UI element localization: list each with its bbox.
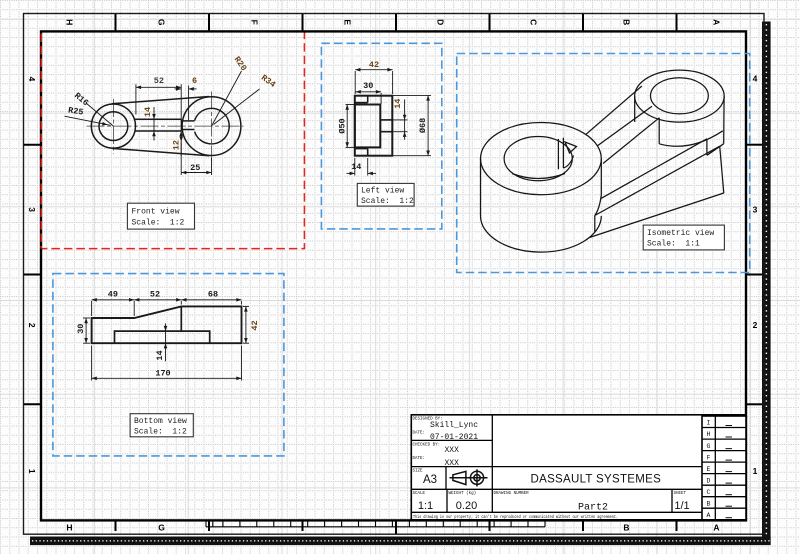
svg-text:SIZE: SIZE [413,470,424,474]
svg-text:42: 42 [369,60,379,70]
svg-text:Isometric view: Isometric view [647,229,714,238]
svg-text:DRAWING NUMBER: DRAWING NUMBER [494,492,530,496]
svg-text:1: 1 [753,466,758,476]
svg-text:DASSAULT SYSTEMES: DASSAULT SYSTEMES [531,474,662,486]
svg-text:1: 1 [27,469,37,474]
svg-text:F: F [707,454,711,461]
svg-text:Part2: Part2 [578,503,608,514]
svg-text:0.20: 0.20 [456,500,477,512]
svg-text:Left view: Left view [361,187,404,196]
svg-text:52: 52 [154,76,164,86]
svg-text:3: 3 [27,207,37,212]
svg-text:DATE:: DATE: [413,457,426,461]
svg-text:G: G [707,443,711,450]
svg-text:2: 2 [27,323,37,328]
svg-text:B: B [623,523,629,533]
svg-text:170: 170 [155,368,170,378]
svg-text:E: E [707,466,711,473]
svg-text:B: B [622,19,632,25]
svg-text:C: C [707,489,711,496]
svg-text:12: 12 [172,140,182,150]
svg-text:25: 25 [190,163,200,173]
svg-text:68: 68 [208,290,218,300]
svg-text:Ø68: Ø68 [418,118,428,133]
svg-text:SHEET: SHEET [674,492,687,496]
svg-text:Scale: 1:2: Scale: 1:2 [361,197,414,206]
svg-text:1:1: 1:1 [418,500,433,512]
svg-text:D: D [707,477,711,484]
svg-text:3: 3 [753,204,758,214]
svg-text:F: F [250,20,260,25]
svg-text:G: G [158,523,165,533]
svg-text:SCALE: SCALE [413,492,426,496]
svg-text:14: 14 [143,107,153,117]
svg-text:A: A [707,512,711,519]
svg-text:Bottom view: Bottom view [134,417,187,426]
svg-text:30: 30 [363,81,373,91]
svg-text:07-01-2021: 07-01-2021 [430,433,478,442]
svg-text:C: C [529,19,539,25]
svg-text:B: B [707,500,711,507]
svg-text:H: H [65,19,75,25]
svg-text:A3: A3 [423,474,437,486]
svg-text:6: 6 [192,76,197,86]
svg-text:Front view: Front view [132,208,180,217]
svg-text:14: 14 [393,99,403,109]
svg-text:49: 49 [108,290,118,300]
svg-text:H: H [66,523,72,533]
svg-text:14: 14 [351,162,361,172]
svg-text:H: H [707,431,711,438]
svg-text:Ø50: Ø50 [338,118,348,133]
svg-text:A: A [712,19,722,25]
svg-text:XXX: XXX [445,459,460,468]
svg-text:Scale: 1:2: Scale: 1:2 [132,219,185,228]
svg-text:CHECKED BY:: CHECKED BY: [413,444,441,448]
svg-text:2: 2 [753,320,758,330]
svg-text:A: A [713,523,719,533]
svg-text:I: I [707,420,711,427]
svg-text:4: 4 [753,74,758,84]
svg-text:D: D [436,19,446,25]
svg-text:30: 30 [76,324,86,334]
svg-text:This drawing is our property;: This drawing is our property; it can't b… [413,514,618,520]
svg-text:DATE:: DATE: [413,431,426,435]
svg-text:Scale: 1:1: Scale: 1:1 [647,240,700,249]
svg-text:G: G [157,19,167,26]
svg-text:Skill_Lync: Skill_Lync [430,421,478,430]
svg-text:1/1: 1/1 [674,500,689,512]
svg-text:42: 42 [250,320,260,330]
svg-text:WEIGHT (kg): WEIGHT (kg) [449,491,477,496]
svg-text:52: 52 [150,290,160,300]
svg-text:Scale: 1:2: Scale: 1:2 [134,428,187,437]
svg-text:14: 14 [155,350,165,360]
svg-text:R25: R25 [68,106,85,118]
svg-text:E: E [343,19,353,25]
svg-text:XXX: XXX [445,446,460,455]
svg-text:4: 4 [27,77,37,82]
